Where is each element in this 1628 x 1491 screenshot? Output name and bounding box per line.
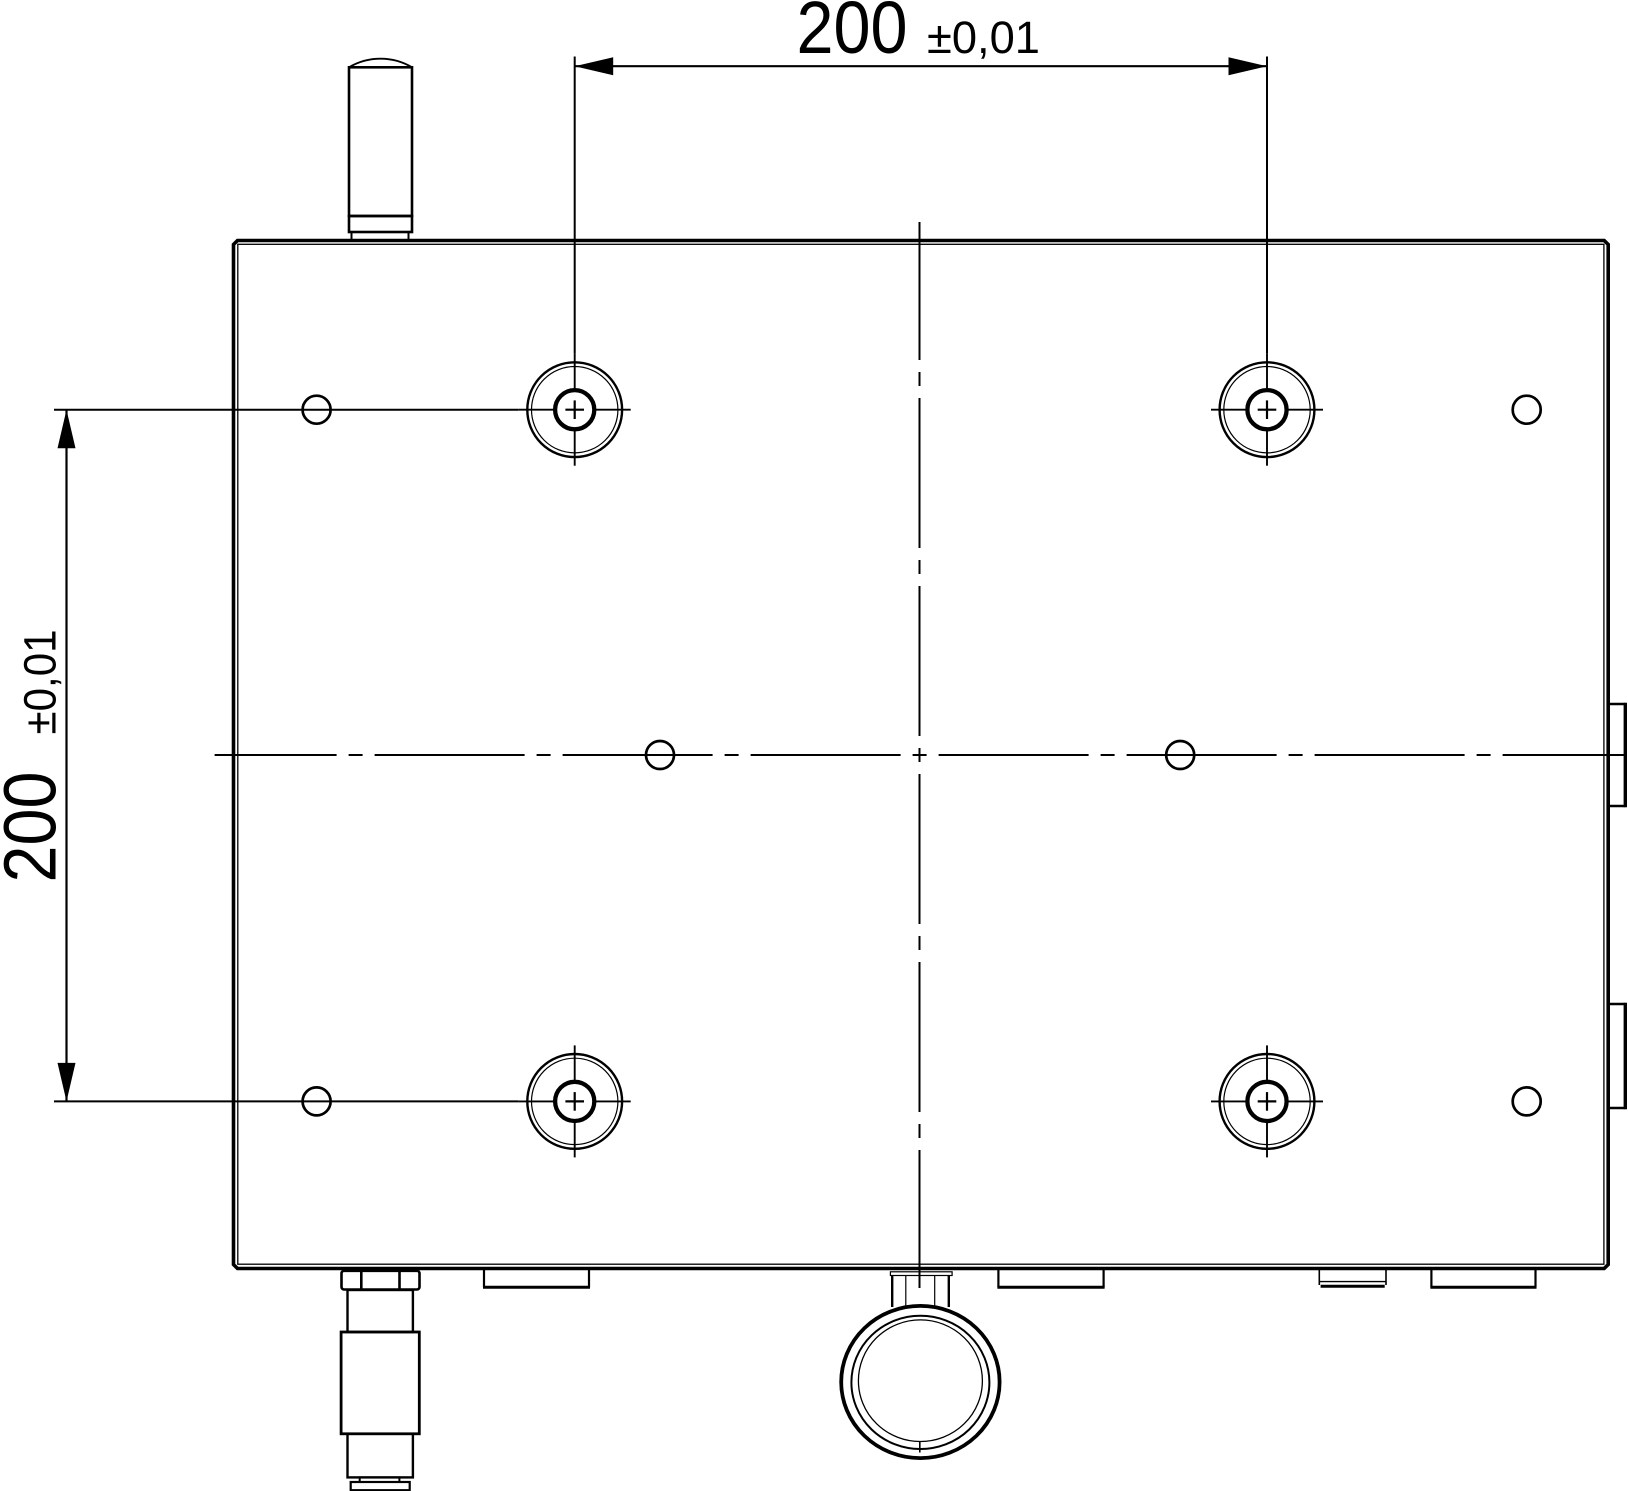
svg-text:±0,01: ±0,01 <box>927 12 1040 63</box>
svg-text:200: 200 <box>797 0 908 69</box>
svg-text:200: 200 <box>0 772 72 883</box>
svg-text:±0,01: ±0,01 <box>15 630 66 735</box>
